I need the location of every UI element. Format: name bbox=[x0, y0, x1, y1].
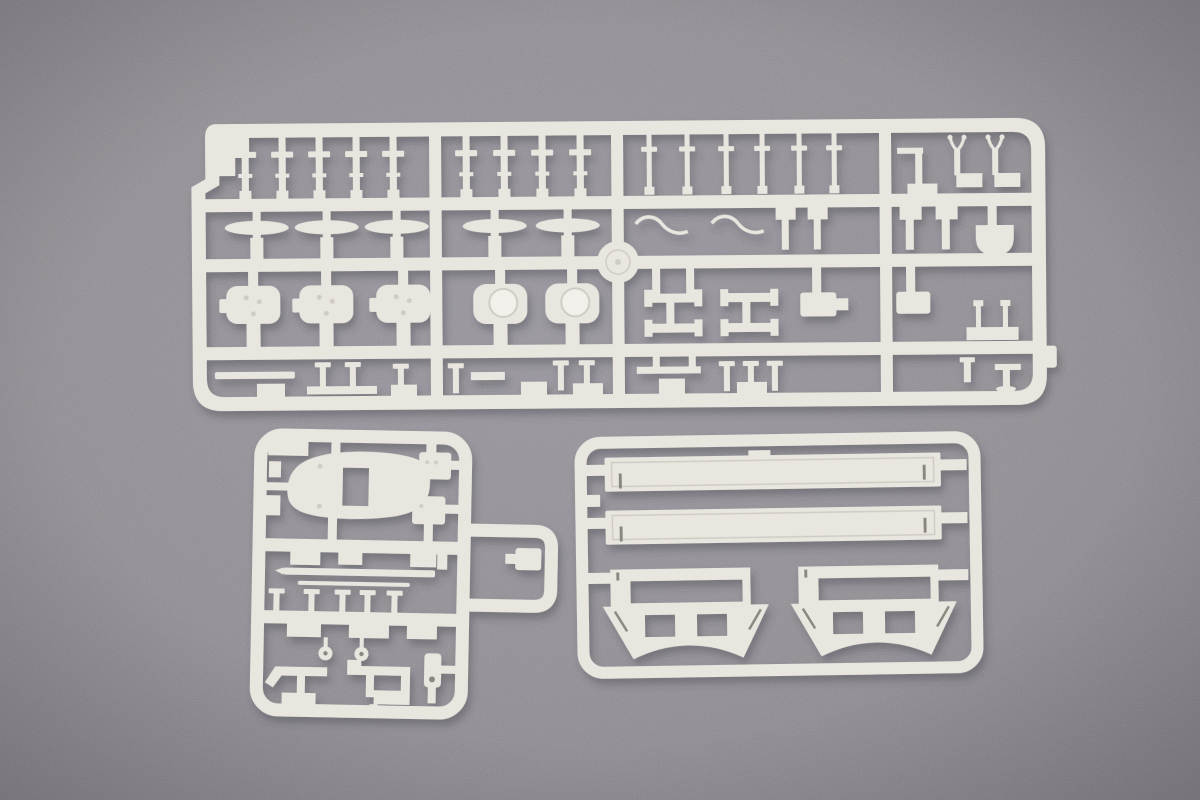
frame-corner-block bbox=[268, 441, 308, 456]
photo-canvas: Top-down photograph of three white injec… bbox=[0, 0, 1200, 800]
frame-inner-step bbox=[1015, 341, 1035, 353]
wedge-part bbox=[269, 461, 281, 477]
hanging-block-part bbox=[808, 207, 828, 219]
runner-gate-disc bbox=[597, 241, 639, 283]
frame-corner-step bbox=[219, 154, 235, 176]
runner-gate bbox=[587, 518, 607, 529]
deck-plank-part bbox=[604, 452, 940, 491]
runner-gate bbox=[588, 573, 610, 584]
frame-tab bbox=[266, 495, 280, 515]
post-part bbox=[782, 220, 789, 250]
frame-tab bbox=[587, 495, 600, 507]
runner-gate bbox=[939, 512, 967, 523]
runner-gate bbox=[938, 569, 968, 580]
deck-plank-part bbox=[605, 505, 941, 544]
hanging-block-part bbox=[776, 208, 796, 220]
runner-gate bbox=[939, 459, 967, 470]
hanging-block-part bbox=[900, 207, 922, 220]
model-kit-sprues-photo: Top-down photograph of three white injec… bbox=[0, 0, 1200, 800]
post-part bbox=[906, 220, 914, 250]
runner-gate bbox=[587, 465, 607, 476]
frame-outer-tab bbox=[1045, 346, 1057, 368]
post-part bbox=[814, 219, 821, 249]
post-part bbox=[942, 219, 950, 249]
hanging-block-part bbox=[936, 206, 958, 219]
